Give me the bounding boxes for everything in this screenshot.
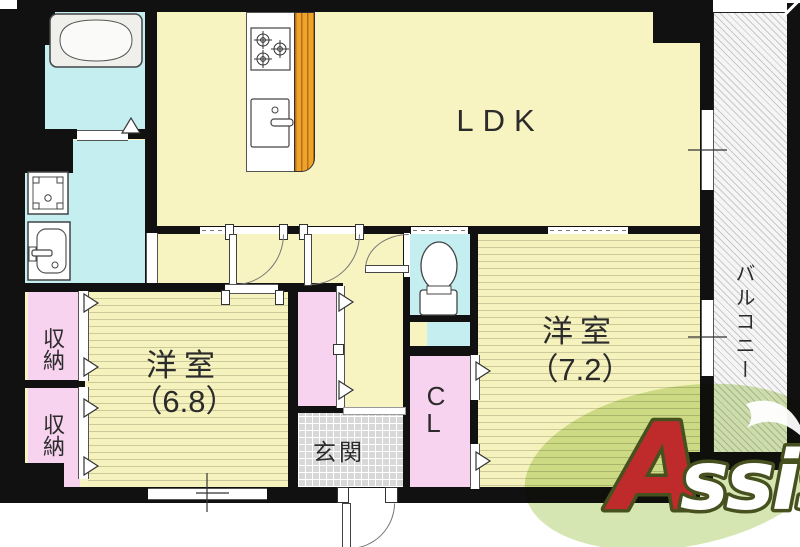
washbasin-icon <box>28 222 70 280</box>
label-entrance: 玄関 <box>303 433 375 467</box>
sink-icon <box>251 99 293 147</box>
label-storage-bottom: 収納 <box>39 405 65 465</box>
stove-icon <box>251 28 290 70</box>
assist-logo-rest: ssist <box>680 434 800 529</box>
closet-cl-door-triangle-1 <box>476 362 490 380</box>
storage-top-door-triangle-2 <box>84 358 98 376</box>
floorplan-canvas: LDK 洋室 （6.8） 洋室 （7.2） 収納 収納 C L 玄関 バルコニー… <box>0 0 800 547</box>
toilet-icon <box>420 242 457 315</box>
label-closet-l: L <box>410 410 457 437</box>
washing-machine-icon <box>28 172 68 214</box>
label-storage-top: 収納 <box>39 319 65 379</box>
label-bedroom-left-size: （6.8） <box>101 376 267 421</box>
bathtub-icon <box>50 14 142 67</box>
closet-cl-door-triangle-2 <box>476 452 490 470</box>
hall-closet-door-triangle-1 <box>339 293 353 311</box>
hall-closet-door-triangle-2 <box>339 381 353 399</box>
label-closet-cl: C L <box>415 383 457 437</box>
assist-logo: A ssist <box>528 372 800 547</box>
storage-bottom-door-triangle-2 <box>84 457 98 475</box>
label-ldk: LDK <box>440 103 560 139</box>
storage-bottom-door-triangle-1 <box>84 399 98 417</box>
storage-top-door-triangle-1 <box>84 294 98 312</box>
bathroom-door-triangle <box>122 118 140 133</box>
label-closet-c: C <box>415 383 457 410</box>
